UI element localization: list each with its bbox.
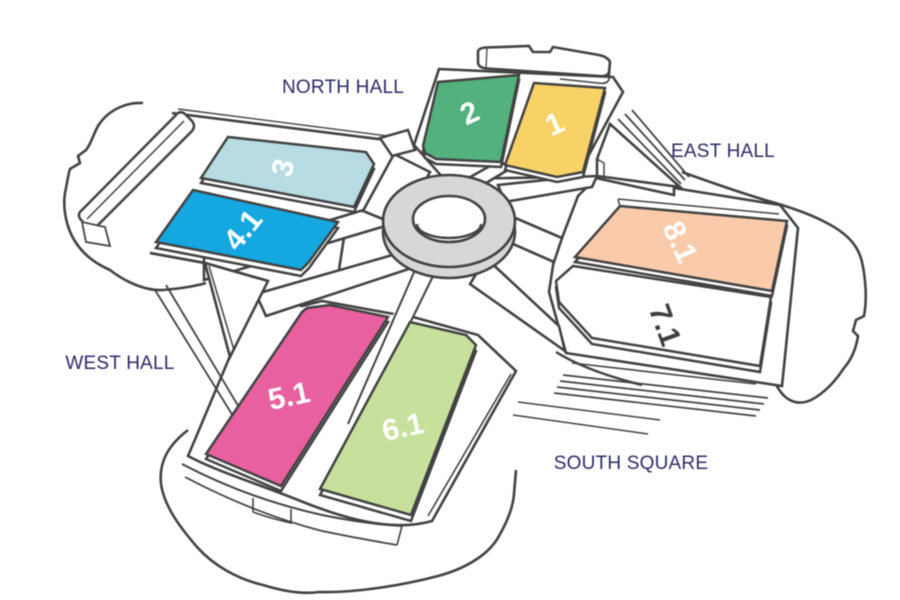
svg-text:WEST HALL: WEST HALL [65, 353, 174, 374]
svg-text:EAST HALL: EAST HALL [671, 141, 775, 162]
svg-text:SOUTH SQUARE: SOUTH SQUARE [554, 453, 708, 474]
svg-text:NORTH HALL: NORTH HALL [282, 77, 404, 98]
